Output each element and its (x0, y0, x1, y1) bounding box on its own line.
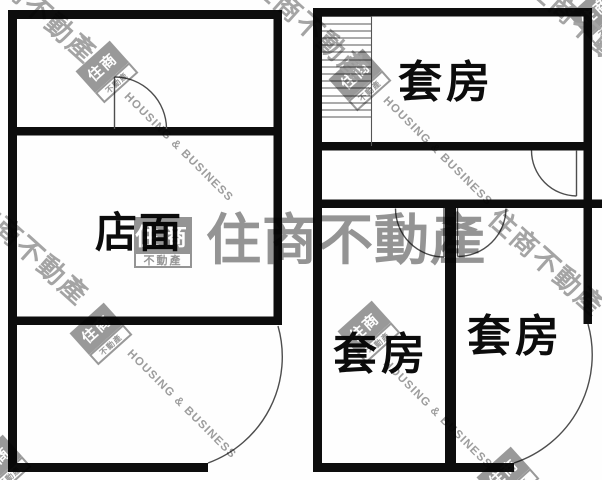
room-label-suite-bottom-left: 套房 (333, 333, 429, 377)
door-right-corridor (531, 150, 576, 196)
door-suite-bottom-left (396, 208, 445, 257)
door-left-entrance (208, 326, 282, 463)
stairs-icon (322, 16, 372, 146)
door-suite-bottom-right (458, 208, 507, 257)
floorplan-linework (0, 0, 602, 480)
room-label-suite-top: 套房 (398, 61, 494, 105)
door-left-upper (115, 77, 167, 129)
room-label-storefront: 店面 (95, 212, 183, 254)
floorplan-image: 店面 套房 套房 套房 住商 不動產 住商不動產 住商 不動產 住商 不動產 住… (0, 0, 602, 480)
room-label-suite-bottom-right: 套房 (467, 315, 563, 359)
